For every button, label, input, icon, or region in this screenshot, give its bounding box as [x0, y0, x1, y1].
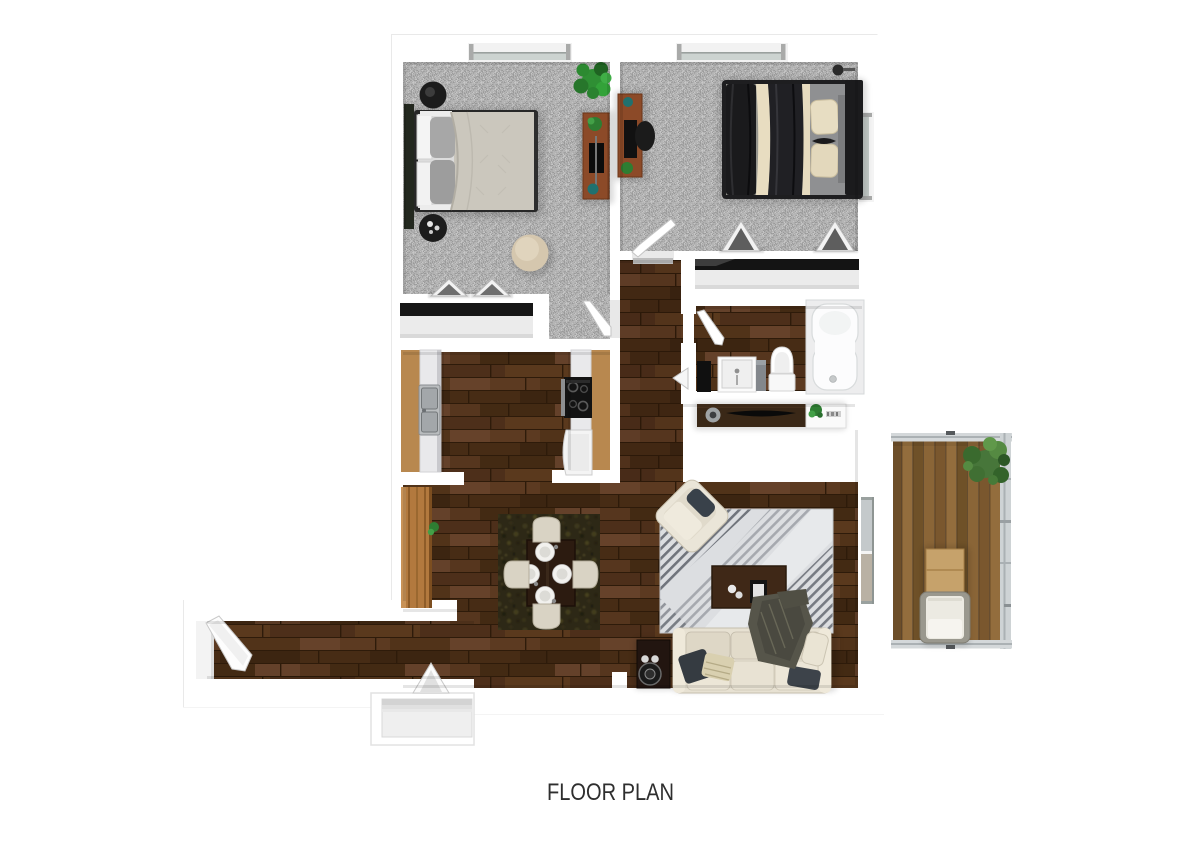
- svg-text:FLOOR PLAN: FLOOR PLAN: [547, 779, 674, 806]
